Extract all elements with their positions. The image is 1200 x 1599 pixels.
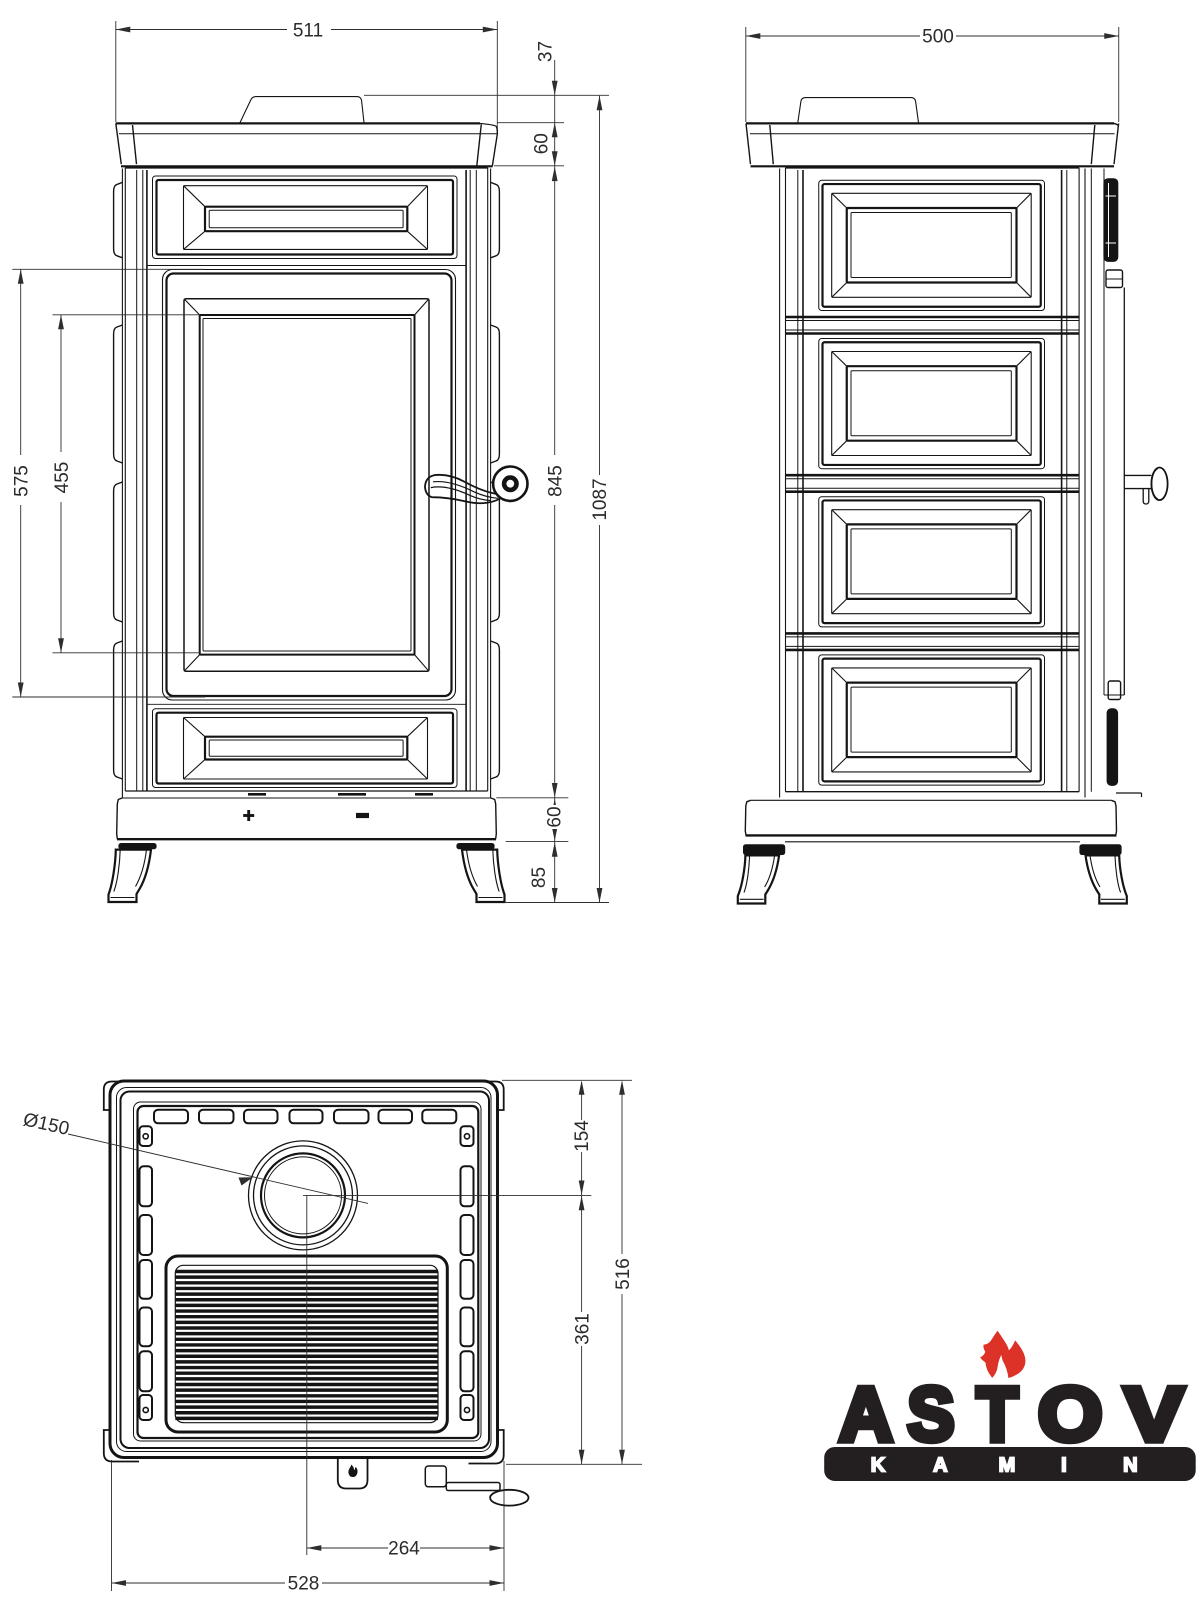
svg-text:500: 500: [922, 27, 954, 48]
svg-text:85: 85: [529, 867, 550, 888]
svg-text:I: I: [1061, 1455, 1067, 1477]
svg-text:K: K: [871, 1455, 886, 1477]
svg-text:516: 516: [613, 1258, 634, 1290]
svg-text:60: 60: [532, 133, 553, 154]
svg-text:V: V: [1124, 1372, 1183, 1457]
svg-text:455: 455: [52, 462, 73, 494]
svg-text:A: A: [839, 1372, 893, 1457]
svg-text:154: 154: [572, 1120, 593, 1152]
svg-text:A: A: [933, 1455, 947, 1477]
svg-text:N: N: [1123, 1455, 1137, 1477]
svg-text:264: 264: [388, 1539, 420, 1560]
svg-text:361: 361: [573, 1313, 594, 1345]
svg-text:845: 845: [546, 465, 567, 497]
svg-text:60: 60: [545, 806, 566, 827]
svg-text:528: 528: [288, 1574, 320, 1595]
svg-text:S: S: [907, 1372, 954, 1457]
svg-text:37: 37: [536, 41, 557, 62]
svg-text:1087: 1087: [590, 478, 611, 520]
svg-text:511: 511: [293, 21, 323, 42]
svg-text:575: 575: [12, 465, 33, 497]
svg-text:T: T: [977, 1373, 1018, 1458]
svg-text:O: O: [1038, 1372, 1102, 1457]
svg-text:M: M: [999, 1455, 1016, 1477]
